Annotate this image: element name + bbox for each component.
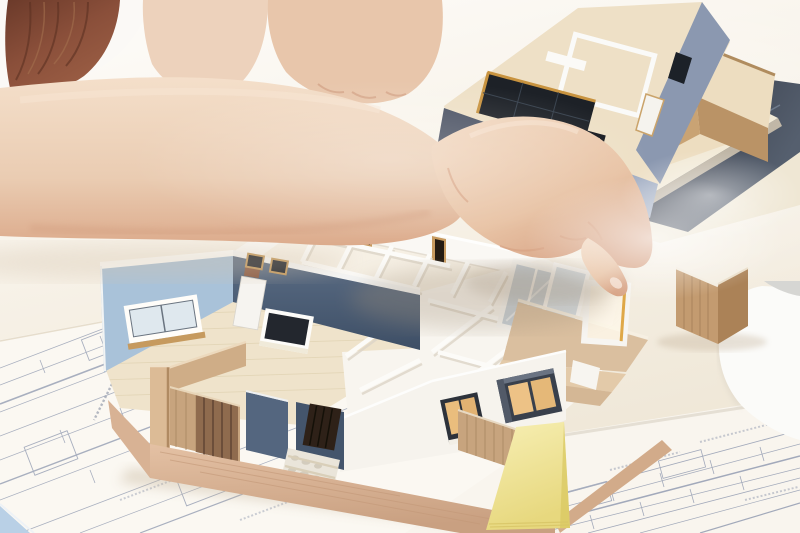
- scene-svg: [0, 0, 800, 533]
- porch-wall-left: [246, 392, 288, 460]
- photo-canvas: [0, 0, 800, 533]
